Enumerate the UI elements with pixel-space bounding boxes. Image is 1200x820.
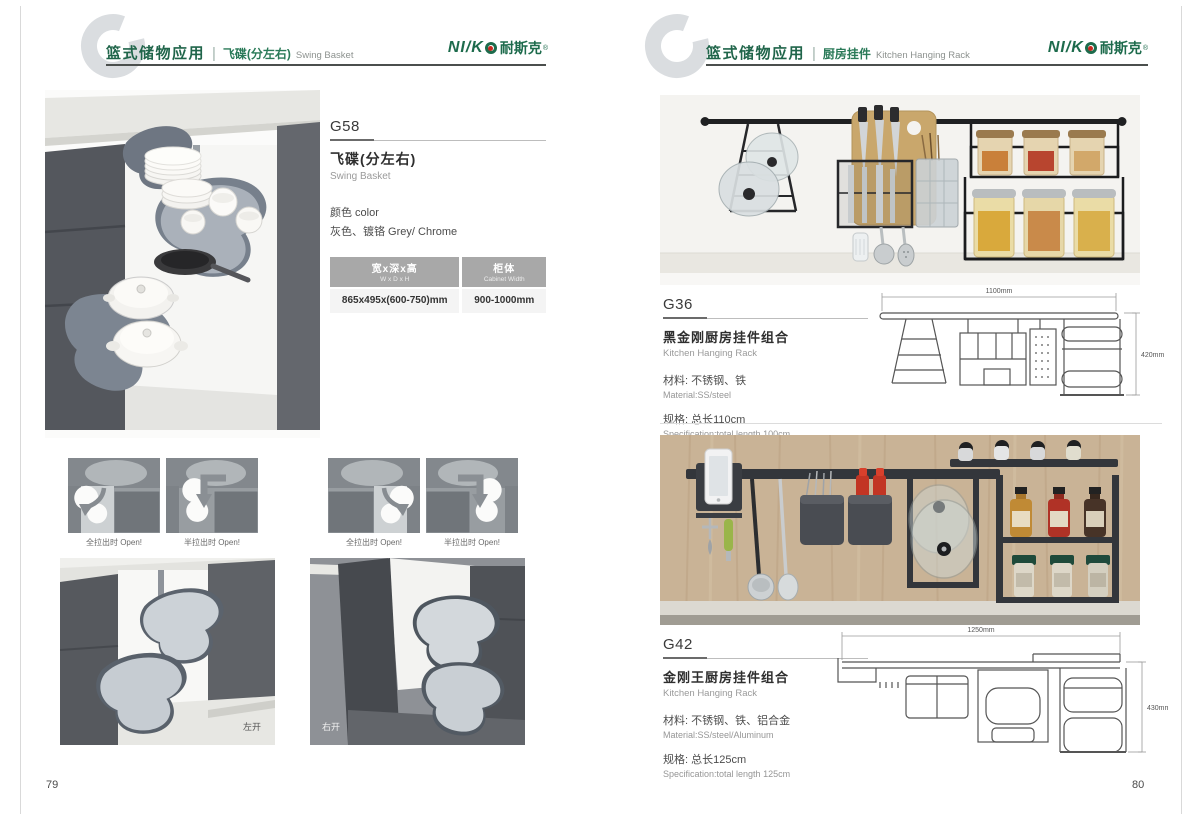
product-info-g58: G58 飞碟(分左右) Swing Basket 颜色 color 灰色、镀铬 … — [330, 118, 546, 313]
page-edge-right — [1181, 6, 1182, 814]
g36-product-photo — [660, 95, 1140, 285]
pasta-jars-bottom — [972, 189, 1116, 257]
diagram-full-open-right — [328, 458, 420, 533]
g36-width-dim: 1100mm — [986, 288, 1013, 295]
spec-col1-header-en: W x D x H — [330, 276, 459, 283]
left-page-header: 篮式储物应用 | 飞碟(分左右) Swing Basket NI/K 耐斯克 ® — [80, 12, 548, 84]
g42-width-dim: 1250mm — [967, 627, 994, 634]
g36-technical-drawing: 1100mm — [868, 283, 1168, 408]
product-name-cn: 黑金刚厨房挂件组合 — [663, 327, 868, 346]
right-page-header: 篮式储物应用 | 厨房挂件 Kitchen Hanging Rack NI/K … — [644, 12, 1148, 84]
product-info-g36: G36 黑金刚厨房挂件组合 Kitchen Hanging Rack 材料: 不… — [663, 296, 868, 439]
nisko-red-dot-icon — [1088, 46, 1093, 51]
spec-col1-value: 865x495x(600-750)mm — [330, 289, 459, 313]
spec-col2-header-en: Cabinet Width — [462, 276, 546, 283]
page-number-left: 79 — [46, 779, 58, 791]
spec-col2-header-cn: 柜体 — [462, 260, 546, 275]
section-divider — [660, 423, 1162, 424]
diagram-label-half-open-2: 半拉出时 Open! — [444, 537, 500, 548]
material-en: Material:SS/steel — [663, 390, 868, 400]
product-name-cn: 飞碟(分左右) — [330, 149, 546, 169]
product-code: G58 — [330, 118, 374, 141]
nisko-red-dot-icon — [488, 46, 493, 51]
spec-cn: 规格: 总长110cm — [663, 411, 868, 427]
g42-height-dim: 430mm — [1147, 705, 1168, 712]
nisko-logo-cn: 耐斯克 — [1100, 38, 1142, 58]
nisko-logo: NI/K 耐斯克 ® — [448, 38, 548, 58]
product-code: G36 — [663, 296, 707, 319]
item-title-en: Kitchen Hanging Rack — [876, 50, 970, 61]
swing-basket-photo — [45, 90, 320, 438]
diagram-half-open-right — [426, 458, 518, 533]
nisko-logo-text: NI/K — [448, 39, 484, 57]
spec-col1-header-cn: 宽x深x高 — [330, 260, 459, 275]
diagram-half-open-left — [166, 458, 258, 533]
nisko-logo-text: NI/K — [1048, 39, 1084, 57]
item-title-cn: 厨房挂件 — [823, 45, 871, 62]
item-title-cn: 飞碟(分左右) — [223, 45, 291, 62]
category-title: 篮式储物应用 — [106, 42, 205, 63]
nisko-o-icon — [485, 42, 497, 54]
catalog-spread: 篮式储物应用 | 飞碟(分左右) Swing Basket NI/K 耐斯克 ® — [0, 0, 1200, 820]
sauce-bottles — [1010, 487, 1106, 537]
registered-mark: ® — [1143, 45, 1148, 52]
category-title: 篮式储物应用 — [706, 42, 805, 63]
left-open-photo: 左开 — [60, 558, 275, 745]
g42-technical-drawing: 1250mm — [828, 620, 1168, 760]
g36-height-dim: 420mm — [1141, 352, 1165, 359]
product-code: G42 — [663, 636, 707, 659]
spec-en: Specification:total length 125cm — [663, 769, 868, 779]
g42-product-photo — [660, 435, 1140, 625]
diagram-full-open-left — [68, 458, 160, 533]
diagram-label-full-open-2: 全拉出时 Open! — [346, 537, 402, 548]
item-title-en: Swing Basket — [296, 50, 354, 61]
spec-col2-value: 900-1000mm — [462, 289, 546, 313]
color-label: 颜色 color — [330, 204, 546, 220]
small-spice-jars — [1012, 555, 1110, 597]
header-rule — [706, 64, 1148, 66]
nisko-logo: NI/K 耐斯克 ® — [1048, 38, 1148, 58]
product-name-en: Kitchen Hanging Rack — [663, 348, 868, 359]
diagram-label-full-open: 全拉出时 Open! — [86, 537, 142, 548]
spice-jars-top — [976, 130, 1106, 175]
product-name-en: Swing Basket — [330, 171, 546, 182]
page-number-right: 80 — [1132, 779, 1144, 791]
title-separator: | — [812, 45, 816, 62]
nisko-logo-cn: 耐斯克 — [500, 38, 542, 58]
utensil-basket — [838, 161, 912, 227]
registered-mark: ® — [543, 45, 548, 52]
color-value: 灰色、镀铬 Grey/ Chrome — [330, 223, 546, 239]
c-watermark-icon — [644, 12, 712, 80]
title-separator: | — [212, 45, 216, 62]
header-rule — [106, 64, 546, 66]
spec-table: 宽x深x高 W x D x H 865x495x(600-750)mm 柜体 C… — [330, 257, 546, 313]
diagram-label-half-open: 半拉出时 Open! — [184, 537, 240, 548]
right-open-photo: 右开 — [310, 558, 525, 745]
left-open-caption: 左开 — [243, 720, 261, 733]
jar-rack — [965, 124, 1123, 259]
right-open-caption: 右开 — [322, 720, 340, 733]
material-cn: 材料: 不锈钢、铁 — [663, 372, 868, 388]
nisko-o-icon — [1085, 42, 1097, 54]
page-edge-left — [20, 6, 21, 814]
